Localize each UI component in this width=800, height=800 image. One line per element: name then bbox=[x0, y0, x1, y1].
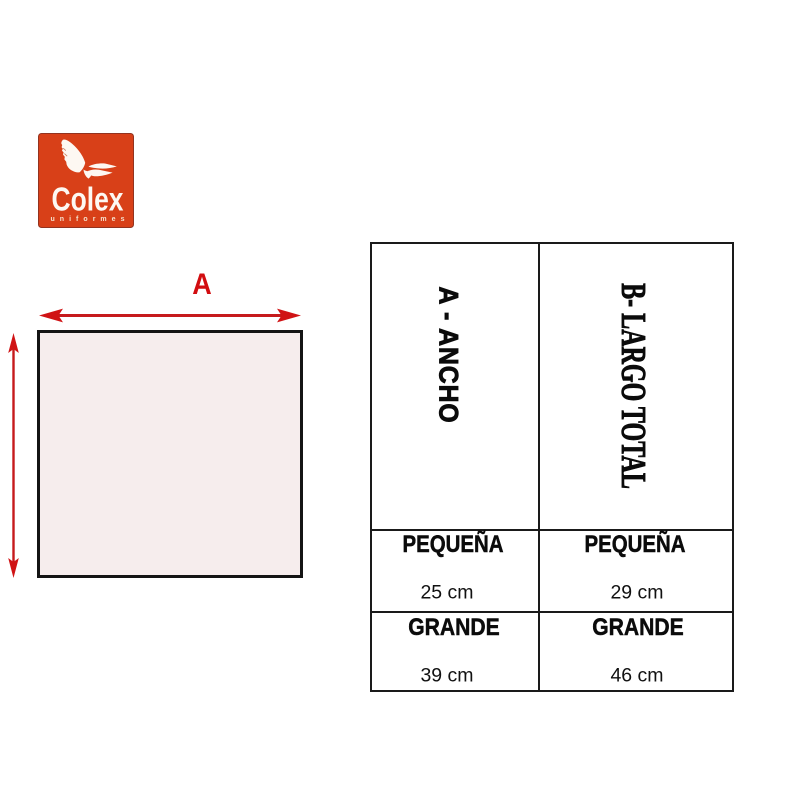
svg-text:Colex: Colex bbox=[52, 181, 124, 218]
svg-text:uniformes: uniformes bbox=[51, 216, 125, 223]
